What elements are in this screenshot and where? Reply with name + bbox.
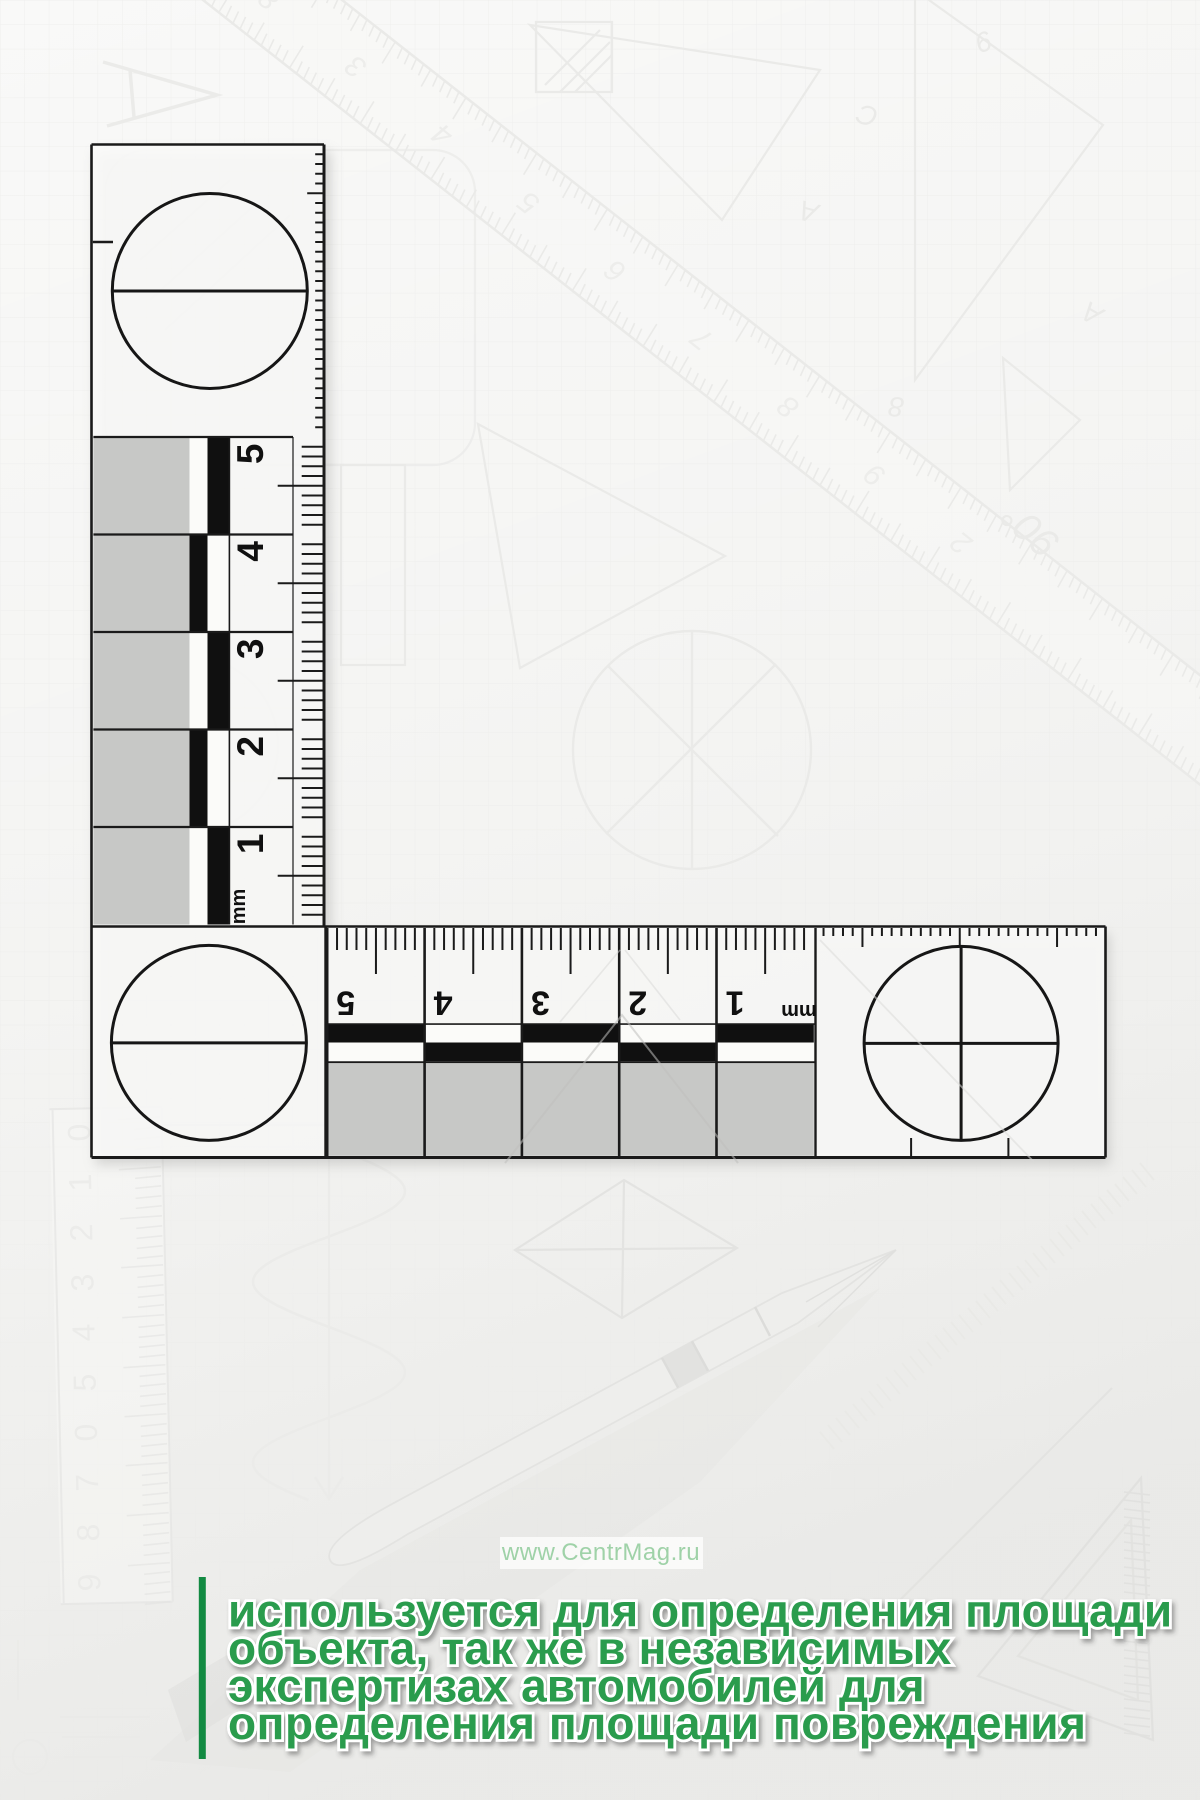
svg-text:www.CentrMag.ru: www.CentrMag.ru	[501, 1539, 700, 1566]
svg-text:5: 5	[230, 444, 271, 465]
svg-text:4: 4	[434, 984, 453, 1022]
svg-text:2: 2	[63, 1223, 99, 1242]
svg-text:0: 0	[68, 1423, 104, 1442]
svg-text:определения площади повреждени: определения площади повреждения	[228, 1697, 1087, 1749]
svg-text:3: 3	[531, 984, 550, 1022]
svg-text:mm: mm	[228, 889, 250, 925]
svg-text:3: 3	[64, 1273, 100, 1292]
svg-text:2: 2	[230, 736, 271, 757]
svg-text:mm: mm	[781, 1000, 817, 1022]
svg-text:8: 8	[70, 1523, 106, 1542]
svg-text:5: 5	[67, 1373, 103, 1392]
svg-text:8: 8	[887, 391, 906, 423]
svg-text:9: 9	[71, 1573, 107, 1592]
svg-text:1: 1	[230, 834, 271, 855]
svg-text:5: 5	[336, 984, 355, 1022]
svg-text:4: 4	[65, 1323, 101, 1342]
svg-text:7: 7	[69, 1473, 105, 1492]
svg-text:2: 2	[628, 984, 647, 1022]
svg-text:4: 4	[230, 541, 271, 562]
svg-text:1: 1	[62, 1173, 98, 1192]
svg-text:3: 3	[230, 639, 271, 660]
svg-text:1: 1	[726, 984, 745, 1022]
